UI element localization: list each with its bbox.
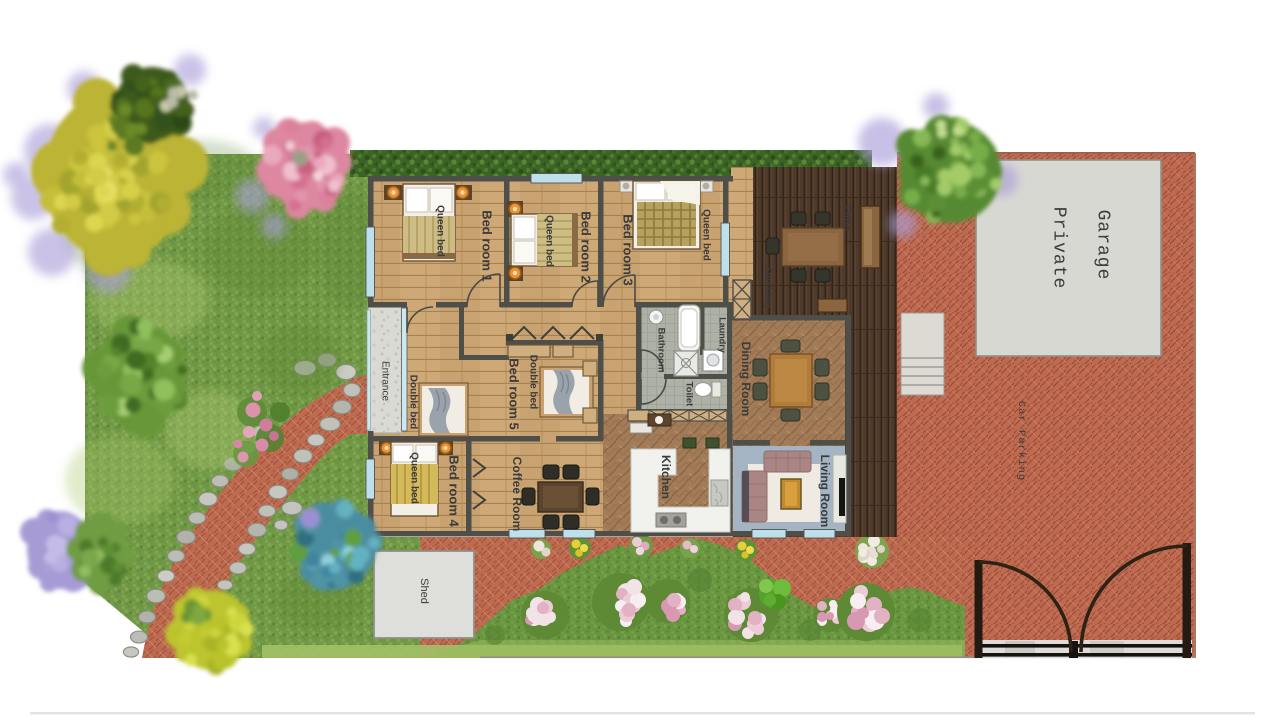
svg-text:Laundry: Laundry — [718, 317, 728, 353]
svg-text:Coffee Room: Coffee Room — [510, 457, 524, 532]
svg-text:Shed: Shed — [418, 578, 430, 604]
svg-text:Patio: Patio — [841, 205, 853, 231]
svg-text:Bed room 1: Bed room 1 — [480, 210, 495, 282]
svg-text:Dining Room: Dining Room — [739, 342, 753, 417]
svg-text:Garage: Garage — [1092, 210, 1112, 281]
svg-text:Queen bed: Queen bed — [543, 215, 554, 267]
svg-text:Entrance: Entrance — [379, 361, 390, 401]
svg-text:Double bed: Double bed — [527, 355, 538, 409]
svg-text:Double bed: Double bed — [407, 375, 418, 429]
svg-text:Queen bed: Queen bed — [408, 452, 419, 504]
svg-text:Queen bed: Queen bed — [700, 209, 711, 261]
svg-text:Bathroom: Bathroom — [655, 328, 666, 373]
svg-text:Bed room 2: Bed room 2 — [579, 211, 594, 283]
svg-text:Queen bed: Queen bed — [434, 205, 445, 257]
svg-text:Car Parking: Car Parking — [1015, 401, 1027, 481]
svg-text:Living Room: Living Room — [818, 455, 832, 528]
svg-text:Bed room 4: Bed room 4 — [447, 455, 462, 527]
svg-text:Toilet: Toilet — [683, 382, 694, 407]
svg-text:Bed room 5: Bed room 5 — [507, 358, 522, 430]
svg-text:Kitchen: Kitchen — [659, 455, 673, 499]
svg-text:Bed room 3: Bed room 3 — [621, 214, 636, 286]
svg-text:Private: Private — [1048, 207, 1068, 290]
svg-text:Decking: Decking — [762, 268, 774, 309]
